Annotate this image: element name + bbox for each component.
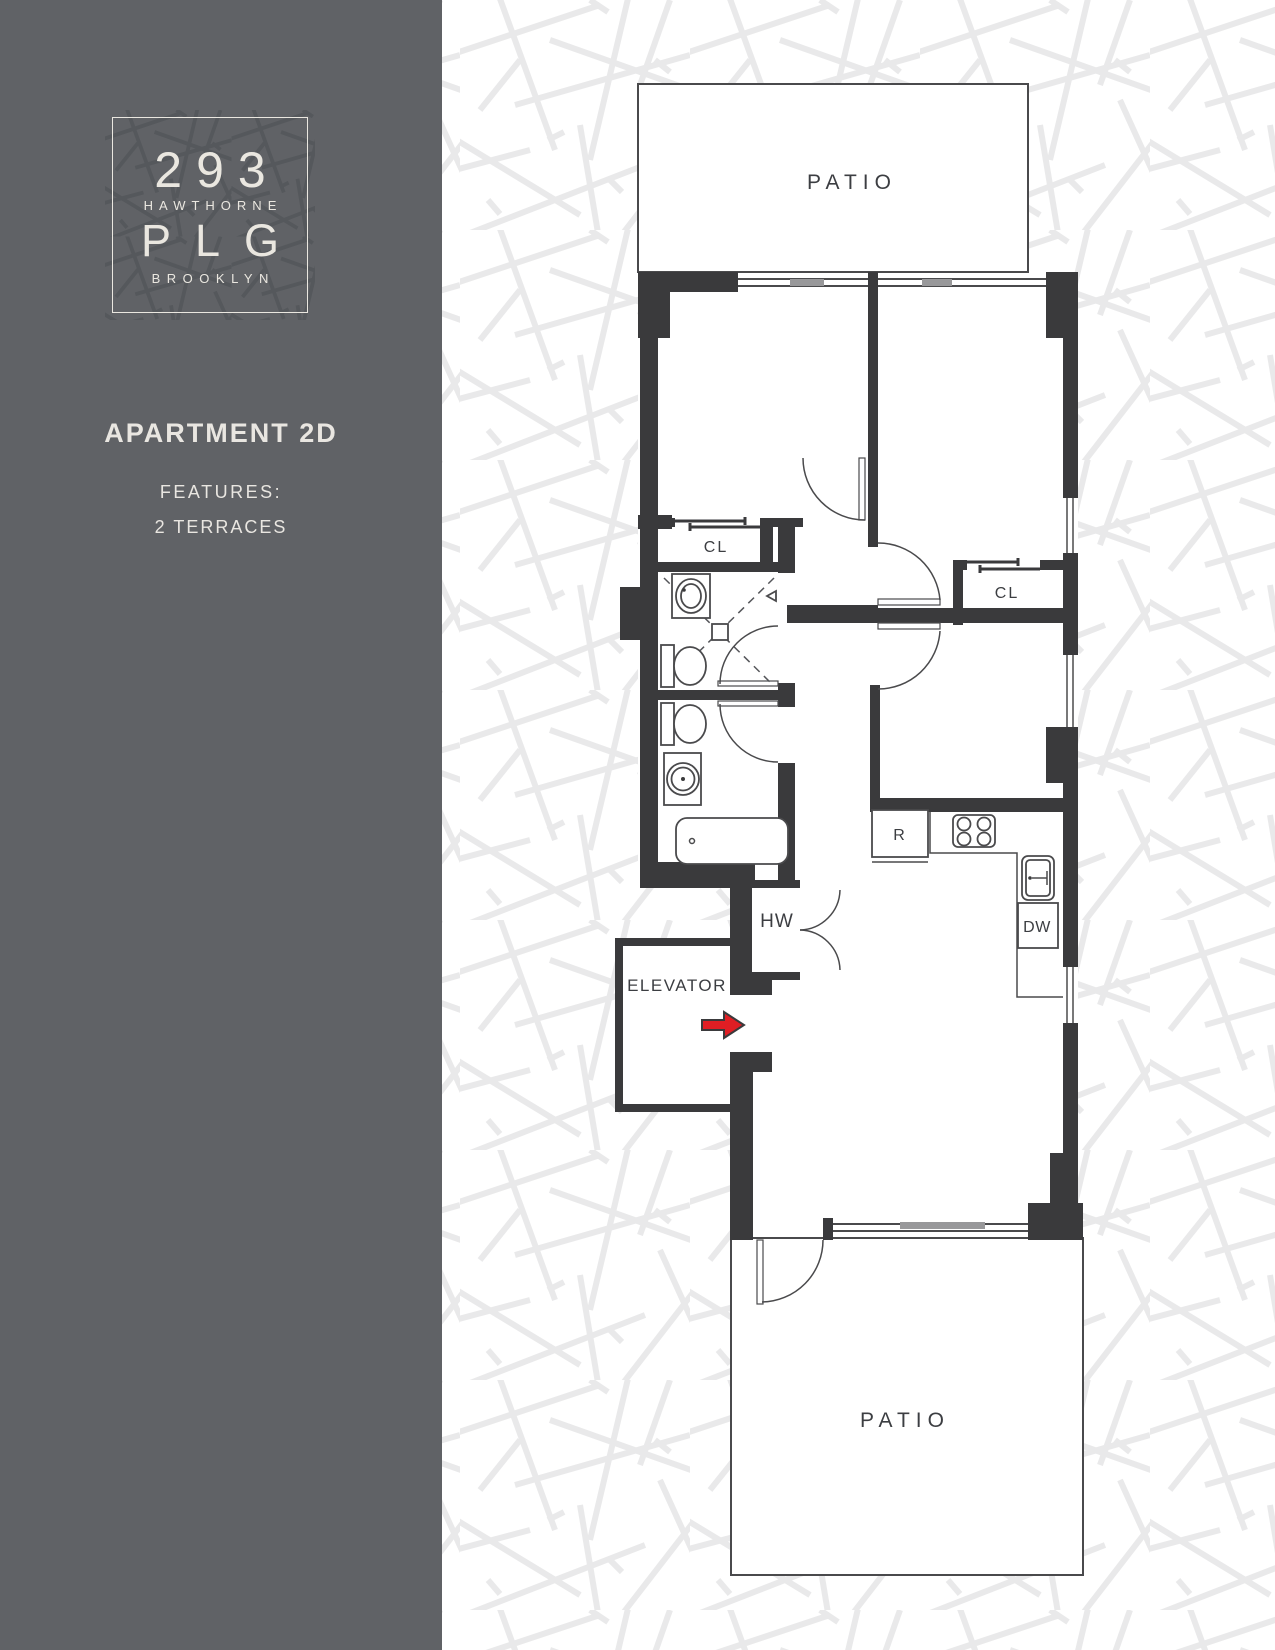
window-right-2 (1063, 655, 1078, 727)
wall-segment (870, 685, 880, 812)
bathtub (676, 818, 788, 864)
faucet-base (1028, 876, 1032, 880)
wall-segment (615, 938, 730, 946)
dishwasher-label: DW (1023, 919, 1051, 936)
logo-borough: BROOKLYN (145, 271, 275, 286)
wall-segment (1046, 727, 1078, 783)
sink-basin-inner (681, 584, 701, 608)
burner (978, 818, 991, 831)
wall-segment (752, 972, 800, 980)
burner (958, 818, 971, 831)
door-leaf (718, 701, 778, 706)
window-glass (790, 279, 824, 286)
logo-street: HAWTHORNE (138, 198, 283, 213)
wall-segment (778, 683, 795, 707)
wall-segment (868, 272, 878, 547)
wall-segment (658, 690, 778, 700)
window-right-1 (1063, 498, 1078, 553)
page: PATIO CL CL HW ELEVATOR R DW PATIO 293 H… (0, 0, 1275, 1650)
hot-water-label: HW (760, 911, 794, 932)
window-glass (922, 279, 952, 286)
sink-drain (681, 777, 685, 781)
wall-segment (787, 605, 878, 623)
apartment-title: APARTMENT 2D (0, 418, 442, 449)
window-glass (900, 1222, 985, 1229)
sidebar: 293 HAWTHORNE PLG BROOKLYN APARTMENT 2D … (0, 0, 442, 1650)
shower-drain (712, 624, 728, 640)
wall-segment (1063, 338, 1078, 498)
patio-bottom (731, 1238, 1083, 1575)
wall-segment (655, 518, 675, 527)
wall-segment (1028, 1203, 1083, 1240)
door-leaf (878, 623, 940, 629)
wall-segment (1063, 553, 1078, 655)
wall-segment (1063, 1023, 1078, 1153)
wall-segment (615, 938, 623, 1112)
burner (958, 833, 971, 846)
wall-segment (658, 562, 795, 572)
wall-segment (778, 518, 795, 573)
logo-frame: 293 HAWTHORNE PLG BROOKLYN (112, 117, 308, 313)
toilet-tank (661, 645, 674, 687)
patio-bottom-label: PATIO (860, 1409, 950, 1432)
refrigerator-label: R (893, 827, 905, 844)
door-leaf (757, 1240, 763, 1304)
building-logo: 293 HAWTHORNE PLG BROOKLYN (105, 110, 315, 320)
burner (978, 833, 991, 846)
toilet-bowl (674, 705, 706, 743)
wall-segment (620, 587, 658, 640)
wall-segment (1046, 272, 1078, 338)
closet-right-label: CL (995, 585, 1019, 602)
sink-drain (682, 588, 686, 592)
door-leaf (859, 458, 865, 520)
toilet-bowl (674, 647, 706, 685)
features-heading: FEATURES: (0, 482, 442, 503)
logo-number: 293 (140, 145, 279, 195)
elevator-label: ELEVATOR (627, 976, 727, 995)
logo-neighborhood: PLG (117, 218, 303, 264)
wall-segment (1063, 783, 1078, 967)
wall-segment (823, 1218, 833, 1240)
wall-segment (752, 880, 800, 888)
patio-top-label: PATIO (807, 171, 897, 194)
wall-segment (640, 292, 658, 875)
closet-left-label: CL (704, 539, 728, 556)
wall-segment (878, 608, 1063, 623)
wall-segment (1050, 1153, 1078, 1205)
wall-segment (953, 560, 963, 625)
wall-segment (730, 1058, 753, 1240)
features-item: 2 TERRACES (0, 517, 442, 538)
wall-segment (638, 272, 738, 292)
door-leaf (878, 599, 940, 605)
window-right-3 (1063, 967, 1078, 1023)
toilet-tank (661, 703, 674, 745)
wall-segment (1040, 560, 1063, 570)
